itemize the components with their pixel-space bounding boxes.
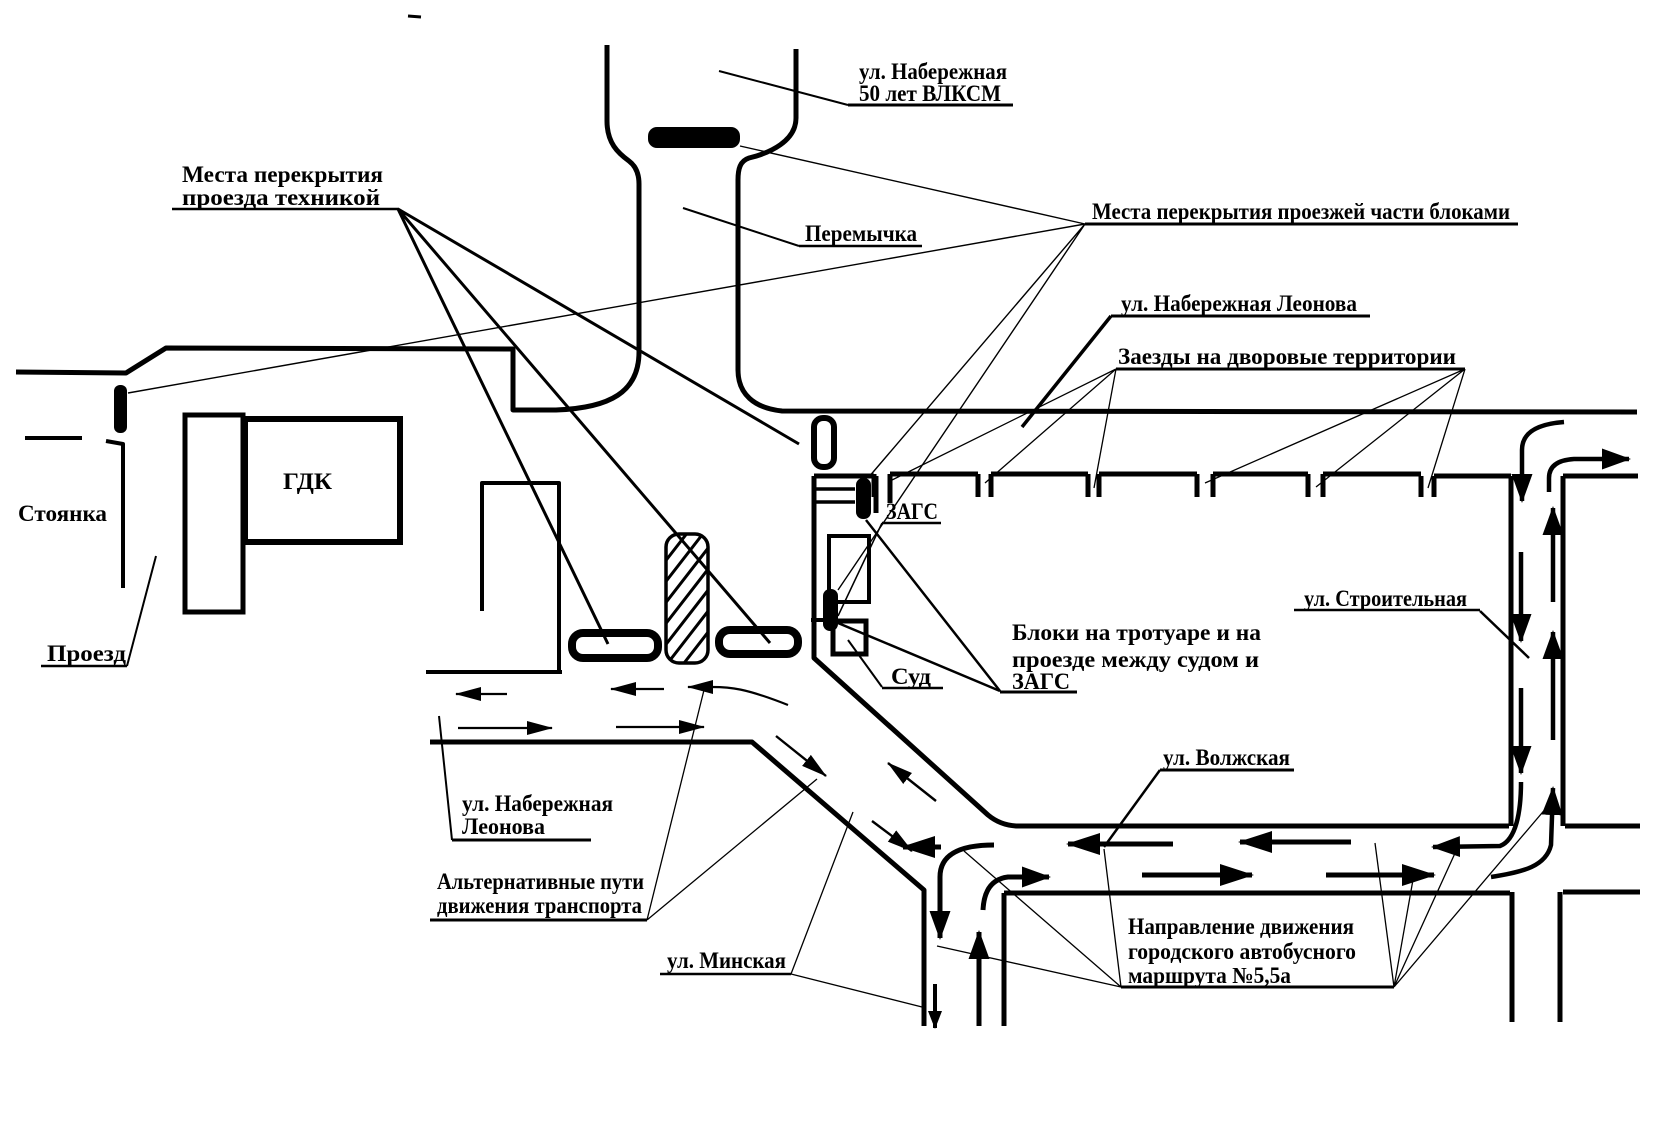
svg-text:ул. Волжская: ул. Волжская xyxy=(1163,745,1290,770)
svg-text:Направление движения: Направление движения xyxy=(1128,914,1354,939)
svg-text:Блоки на тротуаре и на: Блоки на тротуаре и на xyxy=(1012,620,1262,645)
svg-text:Перемычка: Перемычка xyxy=(805,221,917,246)
svg-text:городского автобусного: городского автобусного xyxy=(1128,939,1356,964)
svg-text:ГДК: ГДК xyxy=(283,469,332,494)
svg-text:ул. Набережная: ул. Набережная xyxy=(462,791,613,816)
svg-text:ул. Строительная: ул. Строительная xyxy=(1304,586,1467,611)
svg-text:движения транспорта: движения транспорта xyxy=(437,893,642,918)
svg-text:Суд: Суд xyxy=(891,664,931,689)
svg-text:Места перекрытия проезжей част: Места перекрытия проезжей части блоками xyxy=(1092,199,1510,224)
svg-text:Альтернативные пути: Альтернативные пути xyxy=(437,869,644,894)
svg-text:маршрута №5,5а: маршрута №5,5а xyxy=(1128,963,1291,988)
svg-text:Проезд: Проезд xyxy=(47,641,126,666)
svg-text:Места перекрытия: Места перекрытия xyxy=(182,162,383,187)
svg-text:50 лет ВЛКСМ: 50 лет ВЛКСМ xyxy=(859,81,1001,106)
svg-text:проезда техникой: проезда техникой xyxy=(182,185,380,210)
svg-text:Леонова: Леонова xyxy=(462,814,545,839)
svg-text:ул. Минская: ул. Минская xyxy=(667,948,786,973)
svg-text:ЗАГС: ЗАГС xyxy=(886,499,938,524)
svg-text:ул. Набережная Леонова: ул. Набережная Леонова xyxy=(1121,291,1357,316)
svg-text:Заезды на дворовые территории: Заезды на дворовые территории xyxy=(1118,344,1456,369)
svg-text:Стоянка: Стоянка xyxy=(18,501,107,526)
svg-text:ЗАГС: ЗАГС xyxy=(1012,669,1070,694)
